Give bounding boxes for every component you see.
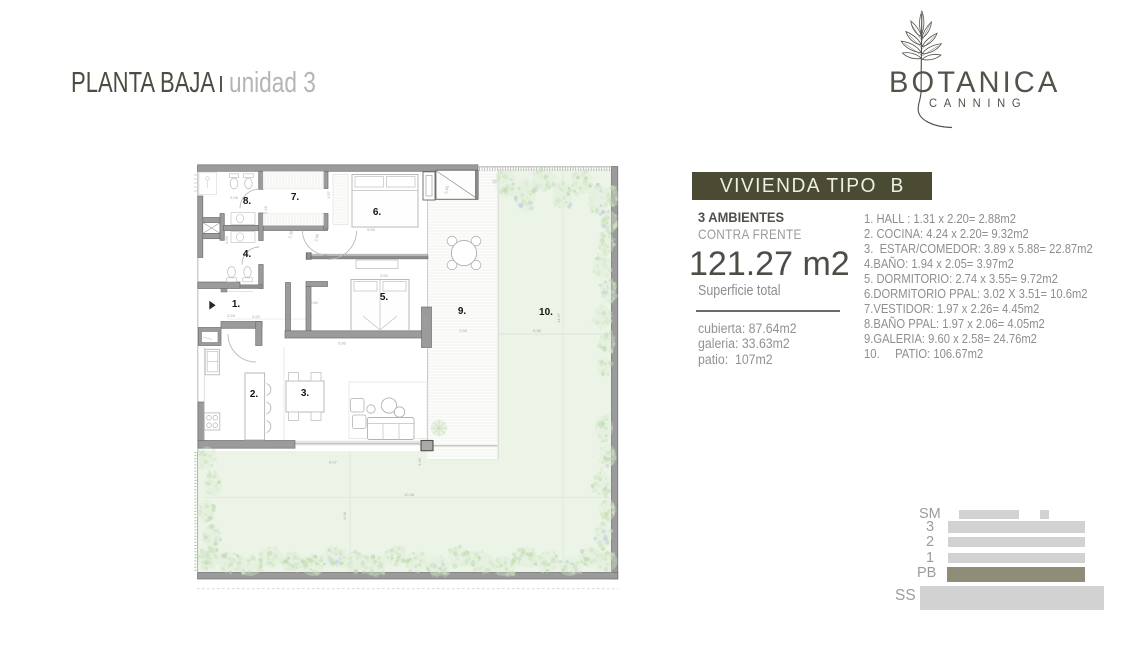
svg-text:2.90: 2.90	[224, 235, 229, 244]
svg-text:10.36: 10.36	[404, 492, 415, 497]
svg-text:3.45: 3.45	[417, 457, 422, 466]
svg-text:2.: 2.	[250, 389, 259, 400]
svg-text:2.06: 2.06	[230, 195, 239, 200]
svg-text:5.86: 5.86	[338, 341, 347, 346]
svg-text:2.26: 2.26	[263, 205, 268, 214]
svg-text:9.20: 9.20	[252, 314, 261, 319]
svg-text:5.38: 5.38	[533, 328, 542, 333]
svg-text:2.30: 2.30	[287, 229, 294, 239]
svg-text:8.: 8.	[243, 196, 252, 207]
svg-text:5.: 5.	[380, 292, 389, 303]
svg-text:14.97: 14.97	[556, 312, 561, 323]
svg-text:2.80: 2.80	[313, 232, 320, 242]
svg-text:0.60: 0.60	[310, 300, 319, 305]
svg-text:3.: 3.	[301, 388, 310, 399]
svg-text:9.55: 9.55	[367, 227, 376, 232]
svg-text:9.: 9.	[458, 306, 467, 317]
svg-text:9.48: 9.48	[422, 317, 427, 326]
svg-text:3.50: 3.50	[380, 273, 389, 278]
svg-text:10.: 10.	[539, 307, 553, 318]
svg-text:4.: 4.	[243, 249, 252, 260]
svg-text:1.: 1.	[232, 299, 241, 310]
svg-text:1.97: 1.97	[326, 190, 331, 199]
svg-text:7.: 7.	[291, 192, 300, 203]
svg-text:4.06: 4.06	[342, 511, 347, 520]
svg-text:6.: 6.	[373, 207, 382, 218]
svg-text:8.07: 8.07	[329, 460, 338, 465]
svg-text:3.28: 3.28	[227, 313, 236, 318]
svg-text:2.58: 2.58	[459, 328, 468, 333]
